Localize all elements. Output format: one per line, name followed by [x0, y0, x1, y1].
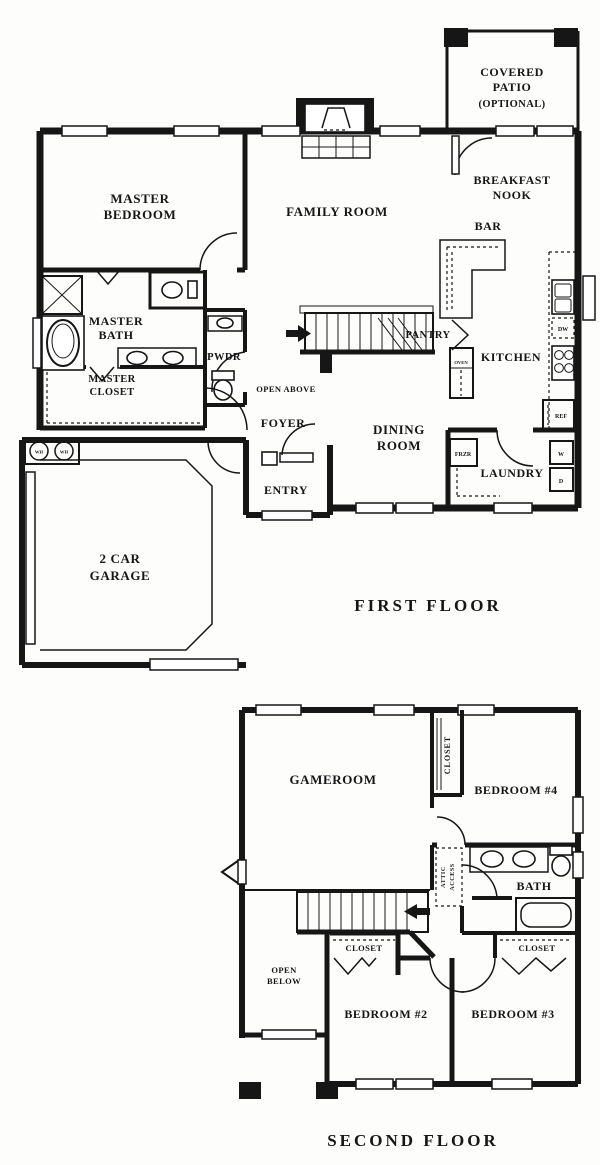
washer-label: W — [558, 452, 564, 458]
second-floor-plan: GAMEROOM CLOSET BEDROOM #4 ATTIC ACCESS — [222, 705, 583, 1150]
window — [573, 852, 583, 878]
dryer: D — [550, 468, 573, 491]
bedroom3-door-arc — [461, 958, 495, 992]
window — [238, 860, 246, 884]
bath-tub — [516, 898, 576, 932]
stairs-down-arrow — [404, 904, 417, 919]
covered-patio-label-2: PATIO — [493, 80, 532, 94]
window — [262, 1030, 316, 1039]
master-bath: MASTER BATH — [33, 270, 205, 428]
master-bath-label-2: BATH — [98, 328, 133, 342]
window — [573, 797, 583, 833]
patio-door-leaf — [452, 136, 459, 174]
window — [356, 503, 393, 513]
window — [396, 1079, 433, 1089]
window — [256, 705, 301, 715]
floor-plan-drawing: COVERED PATIO (OPTIONAL) — [0, 0, 600, 1165]
master-bedroom: MASTER BEDROOM — [40, 131, 245, 270]
bifold-door — [502, 958, 566, 974]
second-floor-caption: SECOND FLOOR — [327, 1131, 499, 1150]
bedroom4-label: BEDROOM #4 — [474, 783, 557, 797]
cooktop — [552, 346, 574, 380]
gameroom-label: GAMEROOM — [289, 772, 376, 787]
dining-room-label-1: DINING — [373, 422, 425, 437]
front-door — [262, 424, 315, 465]
breakfast-nook-label-2: NOOK — [493, 188, 532, 202]
window — [396, 503, 433, 513]
window — [374, 705, 414, 715]
window — [583, 276, 595, 320]
kitchen-counter — [549, 252, 575, 428]
bedroom4: BEDROOM #4 — [432, 783, 578, 845]
bar-counter — [440, 240, 505, 318]
patio-door-arc — [455, 138, 492, 175]
window — [496, 126, 534, 136]
dw-label: DW — [558, 327, 568, 333]
bath-vanity — [470, 847, 548, 872]
window — [33, 318, 41, 368]
powder-room: PWDR — [205, 310, 245, 405]
bifold-door — [334, 958, 376, 974]
attic-access-label-2: ACCESS — [449, 863, 456, 890]
bedroom2-label: BEDROOM #2 — [344, 1007, 427, 1021]
closet-b4-label: CLOSET — [443, 736, 452, 774]
opening-marks — [452, 320, 468, 350]
attic-access-label-1: ATTIC — [440, 866, 447, 888]
laundry: FRZR LAUNDRY W D — [448, 430, 578, 513]
bath-door-arc — [462, 865, 497, 900]
wh-label: WH — [35, 450, 44, 455]
closet-bedroom4: CLOSET — [432, 710, 462, 795]
bath-label: BATH — [516, 879, 551, 893]
bedroom3: BEDROOM #3 — [452, 958, 555, 1084]
open-below: OPEN BELOW — [267, 955, 327, 1035]
master-tub — [42, 316, 84, 370]
washer: W — [550, 441, 573, 464]
family-room-label: FAMILY ROOM — [286, 204, 388, 219]
freezer: FRZR — [450, 439, 477, 466]
pantry: PANTRY — [378, 318, 468, 350]
bath: BATH — [462, 846, 576, 933]
shower — [42, 276, 82, 314]
window — [174, 126, 219, 136]
open-below-label-2: BELOW — [267, 976, 301, 986]
ref-label: REF — [555, 414, 567, 420]
first-floor-caption: FIRST FLOOR — [354, 596, 501, 615]
garage-door-arc — [208, 441, 240, 473]
window — [494, 503, 532, 513]
first-floor-plan: COVERED PATIO (OPTIONAL) — [22, 28, 595, 670]
oven-cabinet: OVEN — [450, 348, 473, 398]
bedroom3-label: BEDROOM #3 — [471, 1007, 554, 1021]
dryer-label: D — [559, 479, 564, 485]
pantry-label: PANTRY — [406, 330, 451, 341]
kitchen-sink — [552, 280, 574, 314]
open-above-label: OPEN ABOVE — [256, 384, 316, 394]
dishwasher: DW — [552, 318, 574, 338]
attic-access: ATTIC ACCESS — [436, 848, 462, 906]
toilet-room — [150, 272, 205, 308]
stairs-second-floor — [245, 890, 434, 957]
garage: WH WH 2 CAR GARAGE — [25, 439, 240, 670]
entry-label: ENTRY — [264, 483, 308, 497]
closet-b2-label: CLOSET — [346, 943, 383, 953]
window — [356, 1079, 393, 1089]
master-bedroom-label-1: MASTER — [110, 191, 169, 206]
pwdr-toilet — [212, 371, 234, 400]
master-closet-label-2: CLOSET — [90, 387, 135, 398]
window — [262, 126, 300, 136]
closet-bedroom3: CLOSET — [462, 933, 578, 974]
window — [26, 472, 35, 644]
floor-plan-document: COVERED PATIO (OPTIONAL) — [0, 0, 600, 1165]
bedroom2-door-arc — [430, 958, 464, 992]
breakfast-nook-label-1: BREAKFAST — [474, 173, 551, 187]
oven-label: OVEN — [454, 360, 468, 365]
covered-patio-label-1: COVERED — [480, 65, 544, 79]
window — [380, 126, 420, 136]
window — [537, 126, 573, 136]
window — [492, 1079, 532, 1089]
pwdr-sink — [208, 316, 242, 331]
laundry-label: LAUNDRY — [480, 466, 543, 480]
covered-patio: COVERED PATIO (OPTIONAL) — [444, 28, 578, 131]
landing-doors — [398, 958, 495, 992]
garage-label-2: GARAGE — [90, 568, 151, 583]
entry-porch — [262, 511, 312, 520]
wh-label: WH — [60, 450, 69, 455]
pwdr-label: PWDR — [207, 352, 241, 363]
master-closet: MASTER CLOSET — [40, 372, 205, 428]
window — [62, 126, 107, 136]
garage-door — [150, 659, 238, 670]
hall-closet-door-arc — [205, 388, 247, 430]
bath-toilet — [550, 846, 572, 876]
bedroom2: BEDROOM #2 — [344, 1007, 427, 1021]
open-below-label-1: OPEN — [271, 965, 297, 975]
master-bath-label-1: MASTER — [89, 314, 143, 328]
closet-bedroom2: CLOSET — [327, 933, 398, 975]
frzr-label: FRZR — [455, 452, 472, 458]
closet-b3-label: CLOSET — [519, 943, 556, 953]
kitchen-label: KITCHEN — [481, 350, 541, 364]
master-bedroom-label-2: BEDROOM — [104, 207, 177, 222]
dining-room-label-2: ROOM — [377, 438, 421, 453]
covered-patio-label-3: (OPTIONAL) — [479, 99, 546, 110]
fireplace — [296, 98, 374, 158]
bar-label: BAR — [475, 219, 502, 233]
master-closet-label-1: MASTER — [88, 374, 135, 385]
garage-label-1: 2 CAR — [100, 551, 141, 566]
refrigerator: REF — [543, 400, 574, 430]
gameroom: GAMEROOM — [222, 710, 432, 890]
